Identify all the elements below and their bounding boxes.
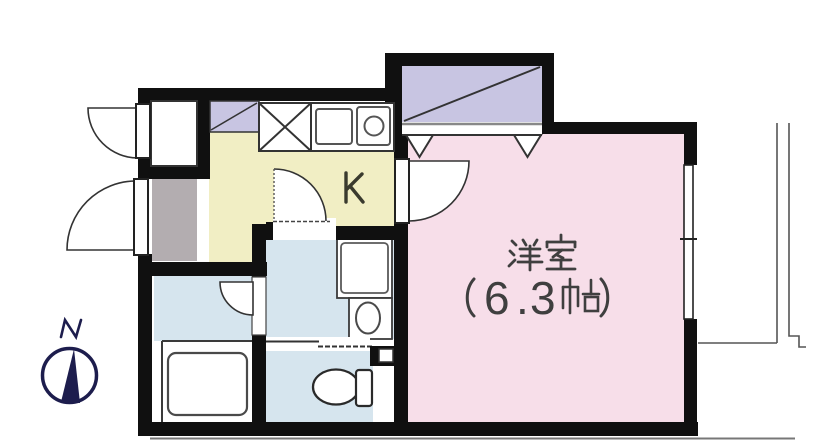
svg-text:6: 6 (484, 272, 510, 324)
svg-text:.: . (516, 272, 529, 324)
svg-text:3: 3 (530, 272, 556, 324)
